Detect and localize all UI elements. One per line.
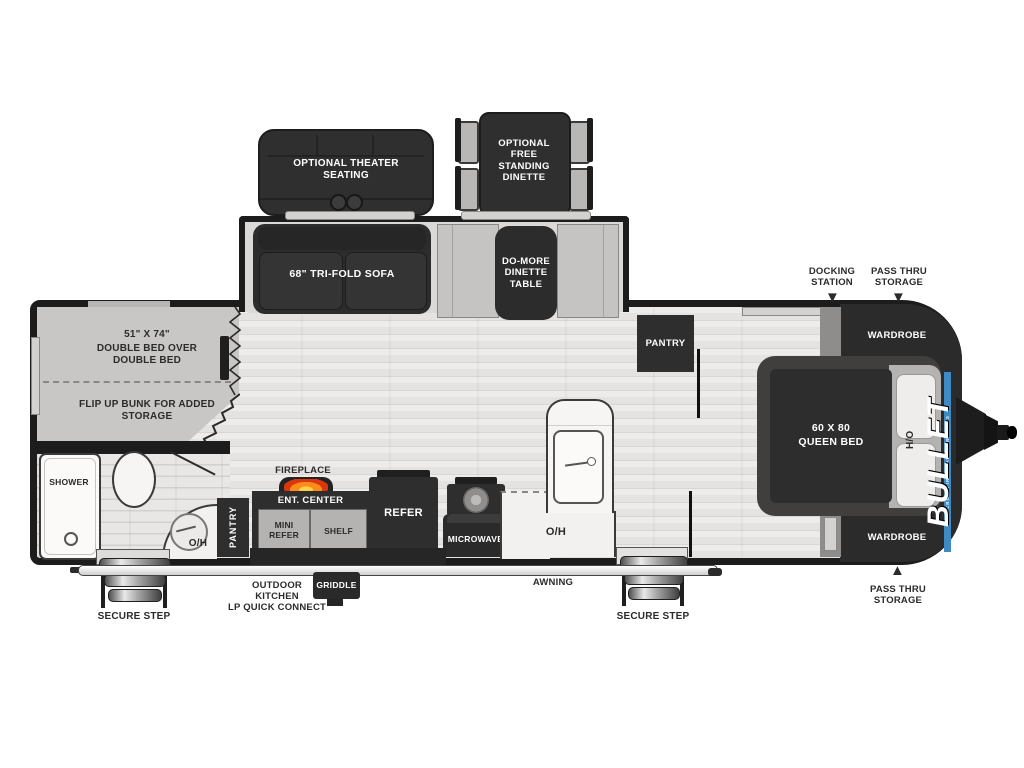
hitch-ball-icon bbox=[1007, 426, 1017, 439]
curtain-zigzag bbox=[229, 307, 241, 397]
wall bbox=[697, 349, 700, 418]
fireplace-label: FIREPLACE bbox=[268, 465, 338, 476]
hitch-coupler bbox=[956, 397, 986, 465]
front-strip bbox=[820, 307, 841, 356]
bunk-size-label: 51" X 74" bbox=[67, 329, 227, 341]
free-standing-dinette-label: OPTIONAL FREE STANDING DINETTE bbox=[487, 138, 561, 184]
window bbox=[285, 211, 415, 220]
secure-step-right-label: SECURE STEP bbox=[613, 611, 693, 623]
shower-label: SHOWER bbox=[41, 477, 97, 487]
microwave: MICROWAVE bbox=[443, 514, 508, 557]
toilet bbox=[112, 451, 156, 508]
secure-step-left-label: SECURE STEP bbox=[94, 611, 174, 623]
pointer-up-icon: ▲ bbox=[890, 563, 905, 578]
bed-size-label: 60 X 80 bbox=[781, 422, 881, 435]
window bbox=[31, 337, 40, 415]
hitch-neck bbox=[984, 414, 998, 450]
pointer-down-icon: ▼ bbox=[825, 290, 840, 305]
dinette-table-label: DO-MORE DINETTE TABLE bbox=[499, 256, 553, 290]
refer: REFER bbox=[369, 477, 438, 557]
dinette-bench bbox=[437, 224, 499, 318]
bunk-title-label: DOUBLE BED OVER DOUBLE BED bbox=[81, 343, 213, 367]
floorplan-canvas: OPTIONAL THEATER SEATING OPTIONAL FREE S… bbox=[0, 0, 1024, 768]
bunk-ladder bbox=[220, 336, 229, 380]
kitchen-sink bbox=[553, 430, 604, 504]
shower-drain-icon bbox=[64, 532, 78, 546]
tri-fold-sofa: 68" TRI-FOLD SOFA bbox=[253, 224, 431, 314]
brand-logo: BULLET bbox=[922, 362, 958, 562]
pantry-bedroom-label: PANTRY bbox=[637, 338, 694, 349]
optional-theater-seating: OPTIONAL THEATER SEATING bbox=[258, 129, 434, 216]
cupholder-icon bbox=[346, 194, 363, 211]
wall bbox=[689, 491, 692, 557]
window bbox=[461, 211, 591, 220]
outdoor-kitchen-panel bbox=[250, 548, 446, 565]
pantry-tall: PANTRY bbox=[217, 498, 249, 557]
outdoor-line3: LP QUICK CONNECT bbox=[222, 602, 332, 613]
dinette-bench bbox=[557, 224, 619, 318]
bath-overhead-label: O/H bbox=[182, 538, 214, 550]
bed-name-label: QUEEN BED bbox=[781, 436, 881, 449]
window bbox=[88, 301, 170, 307]
pantry-tall-label: PANTRY bbox=[228, 502, 239, 553]
kitchen-counter-oh bbox=[500, 491, 550, 559]
mini-refer-label: MINI REFER bbox=[261, 520, 307, 540]
dinette-chair bbox=[458, 121, 479, 164]
window bbox=[824, 517, 837, 551]
kitchen-overhead-label: O/H bbox=[540, 526, 572, 539]
fireplace-flame-icon bbox=[284, 479, 328, 491]
dinette-chair bbox=[458, 168, 479, 211]
optional-free-standing-dinette: OPTIONAL FREE STANDING DINETTE bbox=[455, 112, 593, 216]
secure-step-right bbox=[620, 556, 686, 608]
hamper-label: H/O bbox=[905, 420, 917, 460]
outdoor-line2: KITCHEN bbox=[222, 591, 332, 602]
do-more-dinette-table: DO-MORE DINETTE TABLE bbox=[495, 226, 557, 320]
awning-label: AWNING bbox=[518, 577, 588, 588]
pass-thru-bottom-label: PASS THRU STORAGE bbox=[866, 584, 930, 606]
burner-icon bbox=[463, 487, 489, 513]
outdoor-line1: OUTDOOR bbox=[222, 580, 332, 591]
refer-label: REFER bbox=[369, 507, 438, 520]
kitchen-faucet-knob-icon bbox=[587, 457, 596, 466]
shower: SHOWER bbox=[39, 453, 101, 560]
pointer-down-icon: ▼ bbox=[891, 290, 906, 305]
shelf-label: SHELF bbox=[313, 526, 364, 536]
pass-thru-top-label: PASS THRU STORAGE bbox=[867, 266, 931, 288]
docking-station-label: DOCKING STATION bbox=[800, 266, 864, 288]
cupholder-icon bbox=[330, 194, 347, 211]
awning-end-cap bbox=[708, 568, 722, 576]
ent-center-label: ENT. CENTER bbox=[252, 495, 369, 506]
bunk-divider-line bbox=[43, 381, 231, 383]
theater-seating-label: OPTIONAL THEATER SEATING bbox=[276, 158, 416, 182]
pantry-bedroom: PANTRY bbox=[637, 315, 694, 372]
cooktop bbox=[447, 484, 505, 516]
awning-rail bbox=[78, 565, 718, 576]
wardrobe-top-label: WARDROBE bbox=[851, 330, 943, 341]
outdoor-kitchen-label: OUTDOOR KITCHEN LP QUICK CONNECT bbox=[222, 580, 332, 614]
sofa-label: 68" TRI-FOLD SOFA bbox=[257, 268, 427, 281]
microwave-label: MICROWAVE bbox=[443, 534, 508, 544]
window bbox=[742, 307, 830, 316]
